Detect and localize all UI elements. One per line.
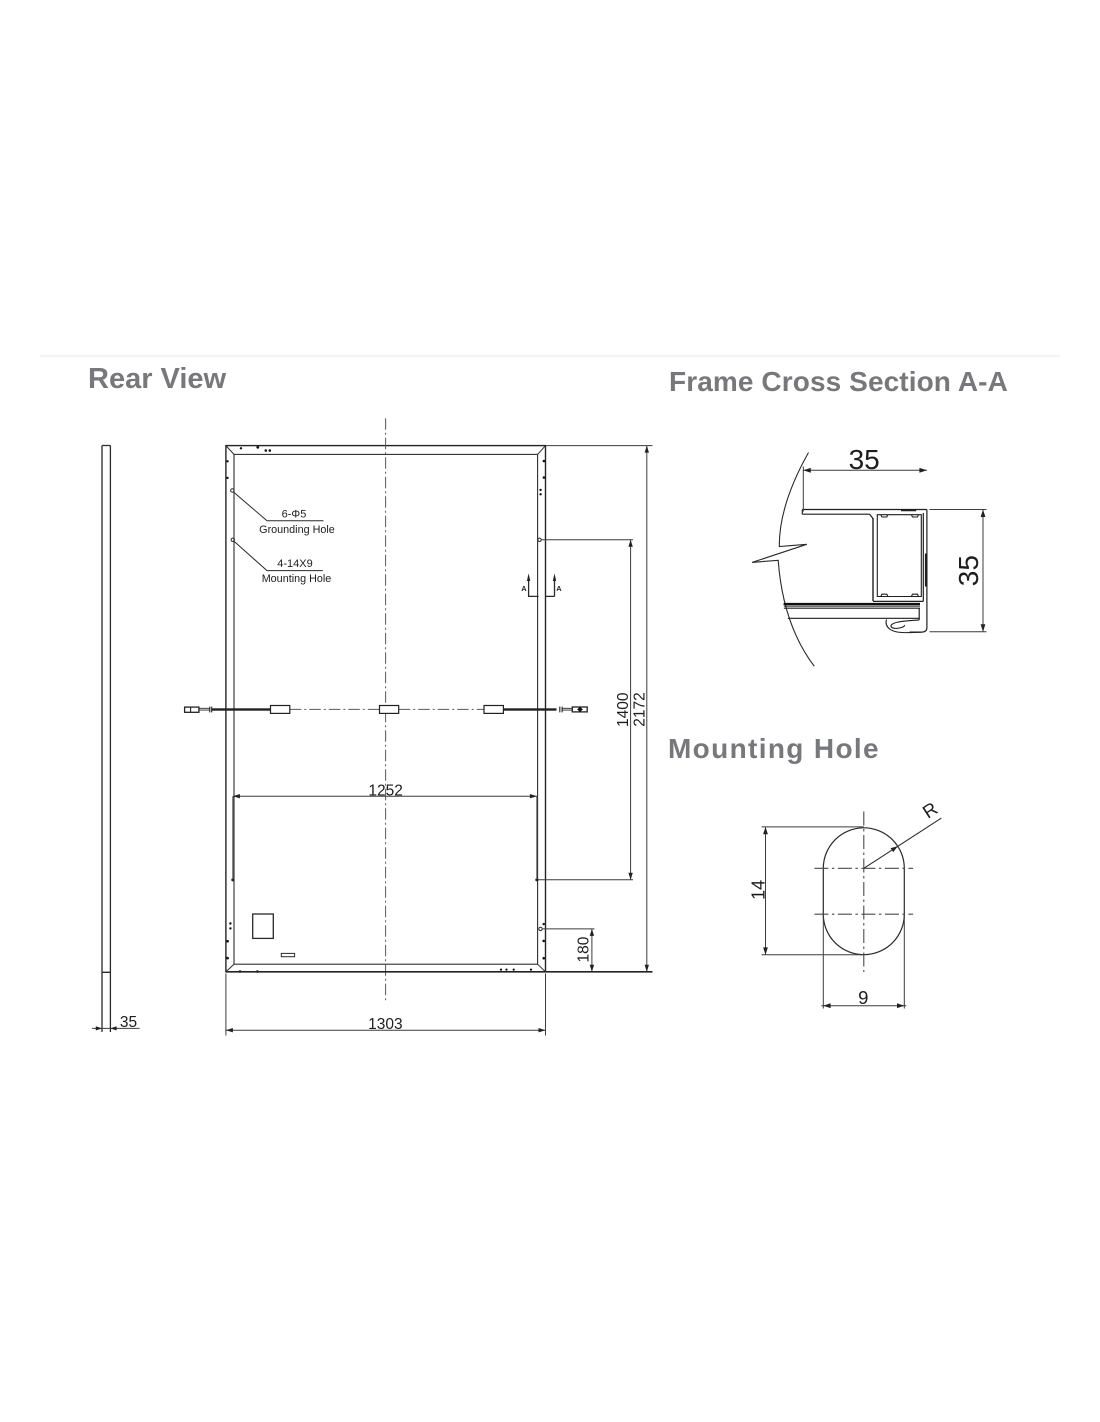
svg-text:A: A [556, 584, 562, 593]
svg-text:2172: 2172 [632, 692, 649, 726]
svg-text:R: R [919, 798, 942, 823]
svg-text:35: 35 [120, 1014, 137, 1031]
svg-text:14: 14 [748, 880, 768, 900]
svg-text:Grounding Hole: Grounding Hole [259, 524, 335, 536]
svg-text:1400: 1400 [615, 692, 632, 727]
svg-text:9: 9 [858, 987, 868, 1008]
svg-text:1303: 1303 [368, 1016, 402, 1033]
svg-text:35: 35 [849, 444, 880, 475]
svg-text:4-14X9: 4-14X9 [277, 558, 312, 570]
svg-text:A: A [521, 584, 527, 593]
svg-text:180: 180 [576, 936, 593, 962]
svg-text:35: 35 [953, 555, 984, 586]
svg-text:6-Φ5: 6-Φ5 [282, 508, 307, 520]
svg-text:1252: 1252 [368, 782, 402, 799]
svg-text:Mounting Hole: Mounting Hole [262, 573, 332, 585]
